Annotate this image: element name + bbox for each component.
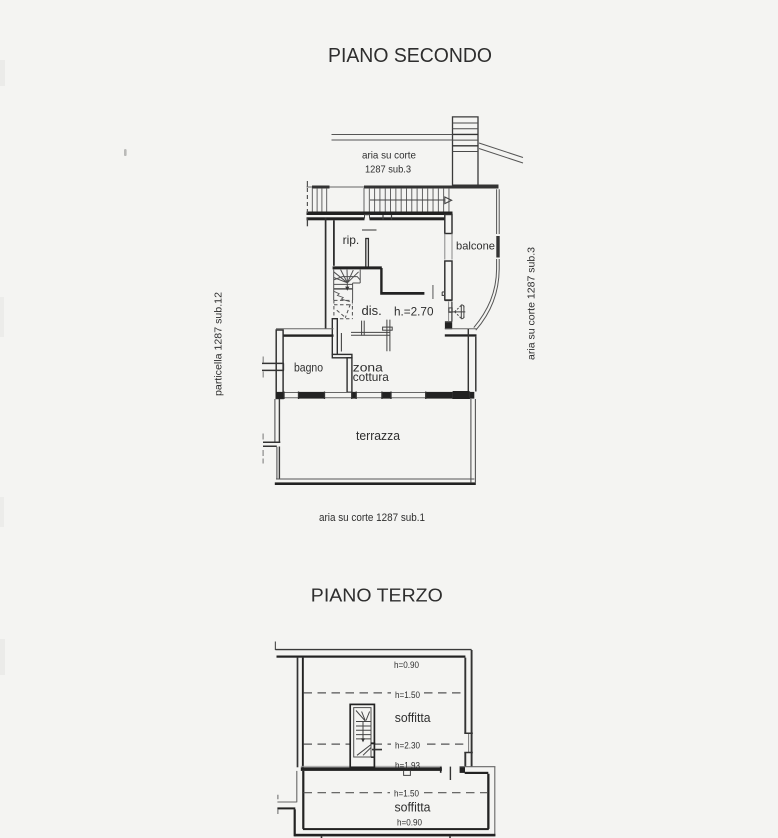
svg-text:balcone: balcone	[456, 240, 495, 252]
svg-text:soffitta: soffitta	[395, 710, 431, 725]
svg-text:aria su corte 1287 sub.3: aria su corte 1287 sub.3	[526, 247, 538, 360]
svg-text:h.=2.70: h.=2.70	[394, 305, 434, 319]
svg-text:aria su corte: aria su corte	[362, 150, 416, 162]
svg-text:h=1.50: h=1.50	[395, 690, 420, 700]
svg-text:cottura: cottura	[353, 370, 389, 384]
svg-text:h=2.30: h=2.30	[395, 740, 420, 750]
svg-text:soffitta: soffitta	[395, 800, 432, 815]
svg-text:particella 1287 sub.12: particella 1287 sub.12	[213, 292, 225, 396]
svg-text:h=0.90: h=0.90	[397, 817, 422, 827]
svg-text:h=1.50: h=1.50	[394, 789, 419, 799]
svg-text:h=0.90: h=0.90	[394, 660, 419, 670]
svg-text:PIANO TERZO: PIANO TERZO	[311, 585, 443, 606]
svg-text:dis.: dis.	[362, 303, 382, 318]
svg-text:1287 sub.3: 1287 sub.3	[365, 164, 411, 176]
svg-text:rip.: rip.	[343, 233, 360, 247]
svg-text:PIANO SECONDO: PIANO SECONDO	[328, 45, 492, 67]
svg-text:terrazza: terrazza	[356, 428, 401, 443]
svg-text:bagno: bagno	[294, 360, 323, 374]
svg-text:aria su corte 1287 sub.1: aria su corte 1287 sub.1	[319, 512, 425, 524]
svg-text:h=1.93: h=1.93	[395, 760, 420, 770]
